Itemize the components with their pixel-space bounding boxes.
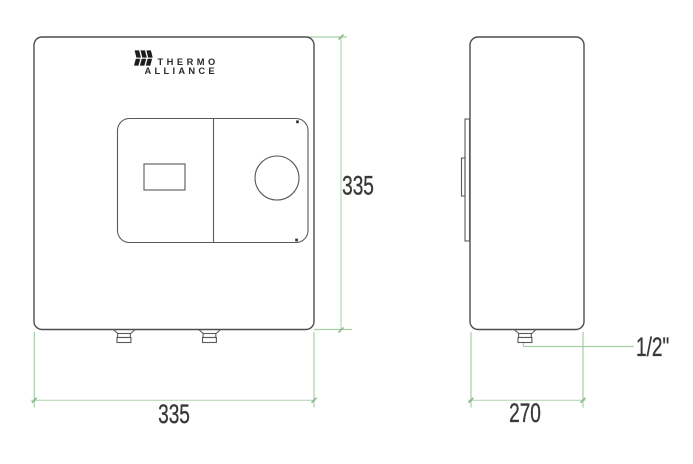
- svg-text:1/2": 1/2": [636, 332, 669, 362]
- svg-text:335: 335: [342, 170, 374, 200]
- svg-text:335: 335: [158, 399, 190, 429]
- svg-text:ALLIANCE: ALLIANCE: [145, 66, 218, 76]
- svg-text:270: 270: [509, 398, 541, 428]
